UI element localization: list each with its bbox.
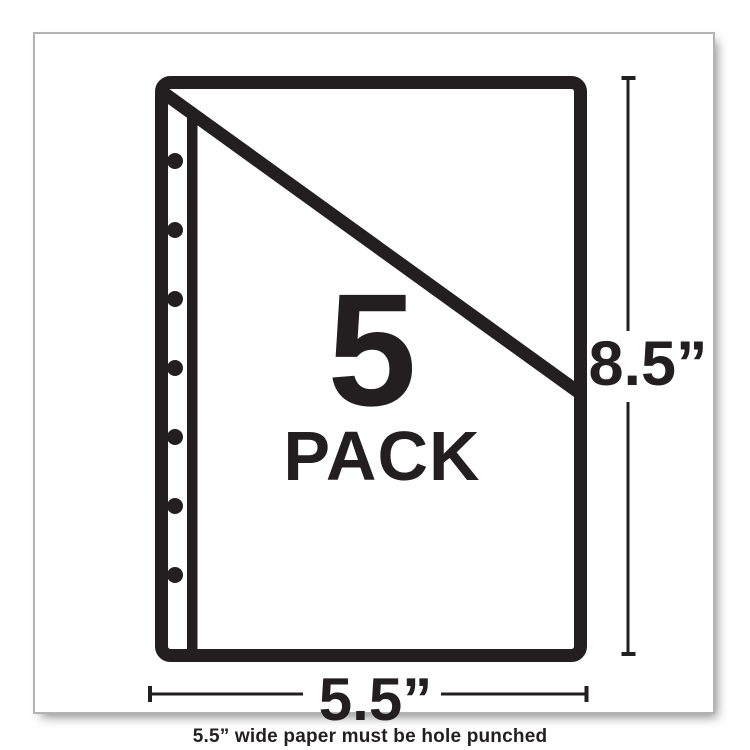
pack-word-text: PACK — [207, 425, 557, 487]
width-dim-left-tick — [148, 686, 152, 702]
height-dim-lower-segment — [627, 402, 630, 652]
binder-hole-dot — [167, 567, 183, 583]
height-dim-top-tick — [622, 76, 636, 80]
width-dim-right-tick — [585, 686, 589, 702]
height-dim-bottom-tick — [622, 652, 636, 656]
width-dimension-label: 5.5” — [298, 671, 453, 729]
product-image-page: 5 PACK 8.5” 5.5” 5.5” wide paper must be… — [0, 0, 750, 750]
binder-hole-dot — [167, 222, 183, 238]
height-dim-upper-segment — [627, 80, 630, 331]
binder-hole-dot — [167, 429, 183, 445]
pack-count-text: 5 — [197, 275, 547, 425]
height-dimension-label: 8.5” — [578, 335, 718, 393]
binder-hole-dot — [167, 153, 183, 169]
binding-strip-line-icon — [187, 112, 198, 649]
width-dim-right-segment — [441, 693, 585, 696]
binder-hole-dot — [167, 291, 183, 307]
product-illustration-card: 5 PACK 8.5” 5.5” 5.5” wide paper must be… — [33, 32, 715, 714]
binder-holes — [167, 153, 183, 583]
width-dim-left-segment — [152, 693, 303, 696]
hole-punch-footnote: 5.5” wide paper must be hole punched — [70, 723, 670, 749]
binder-hole-dot — [167, 498, 183, 514]
binder-hole-dot — [167, 360, 183, 376]
